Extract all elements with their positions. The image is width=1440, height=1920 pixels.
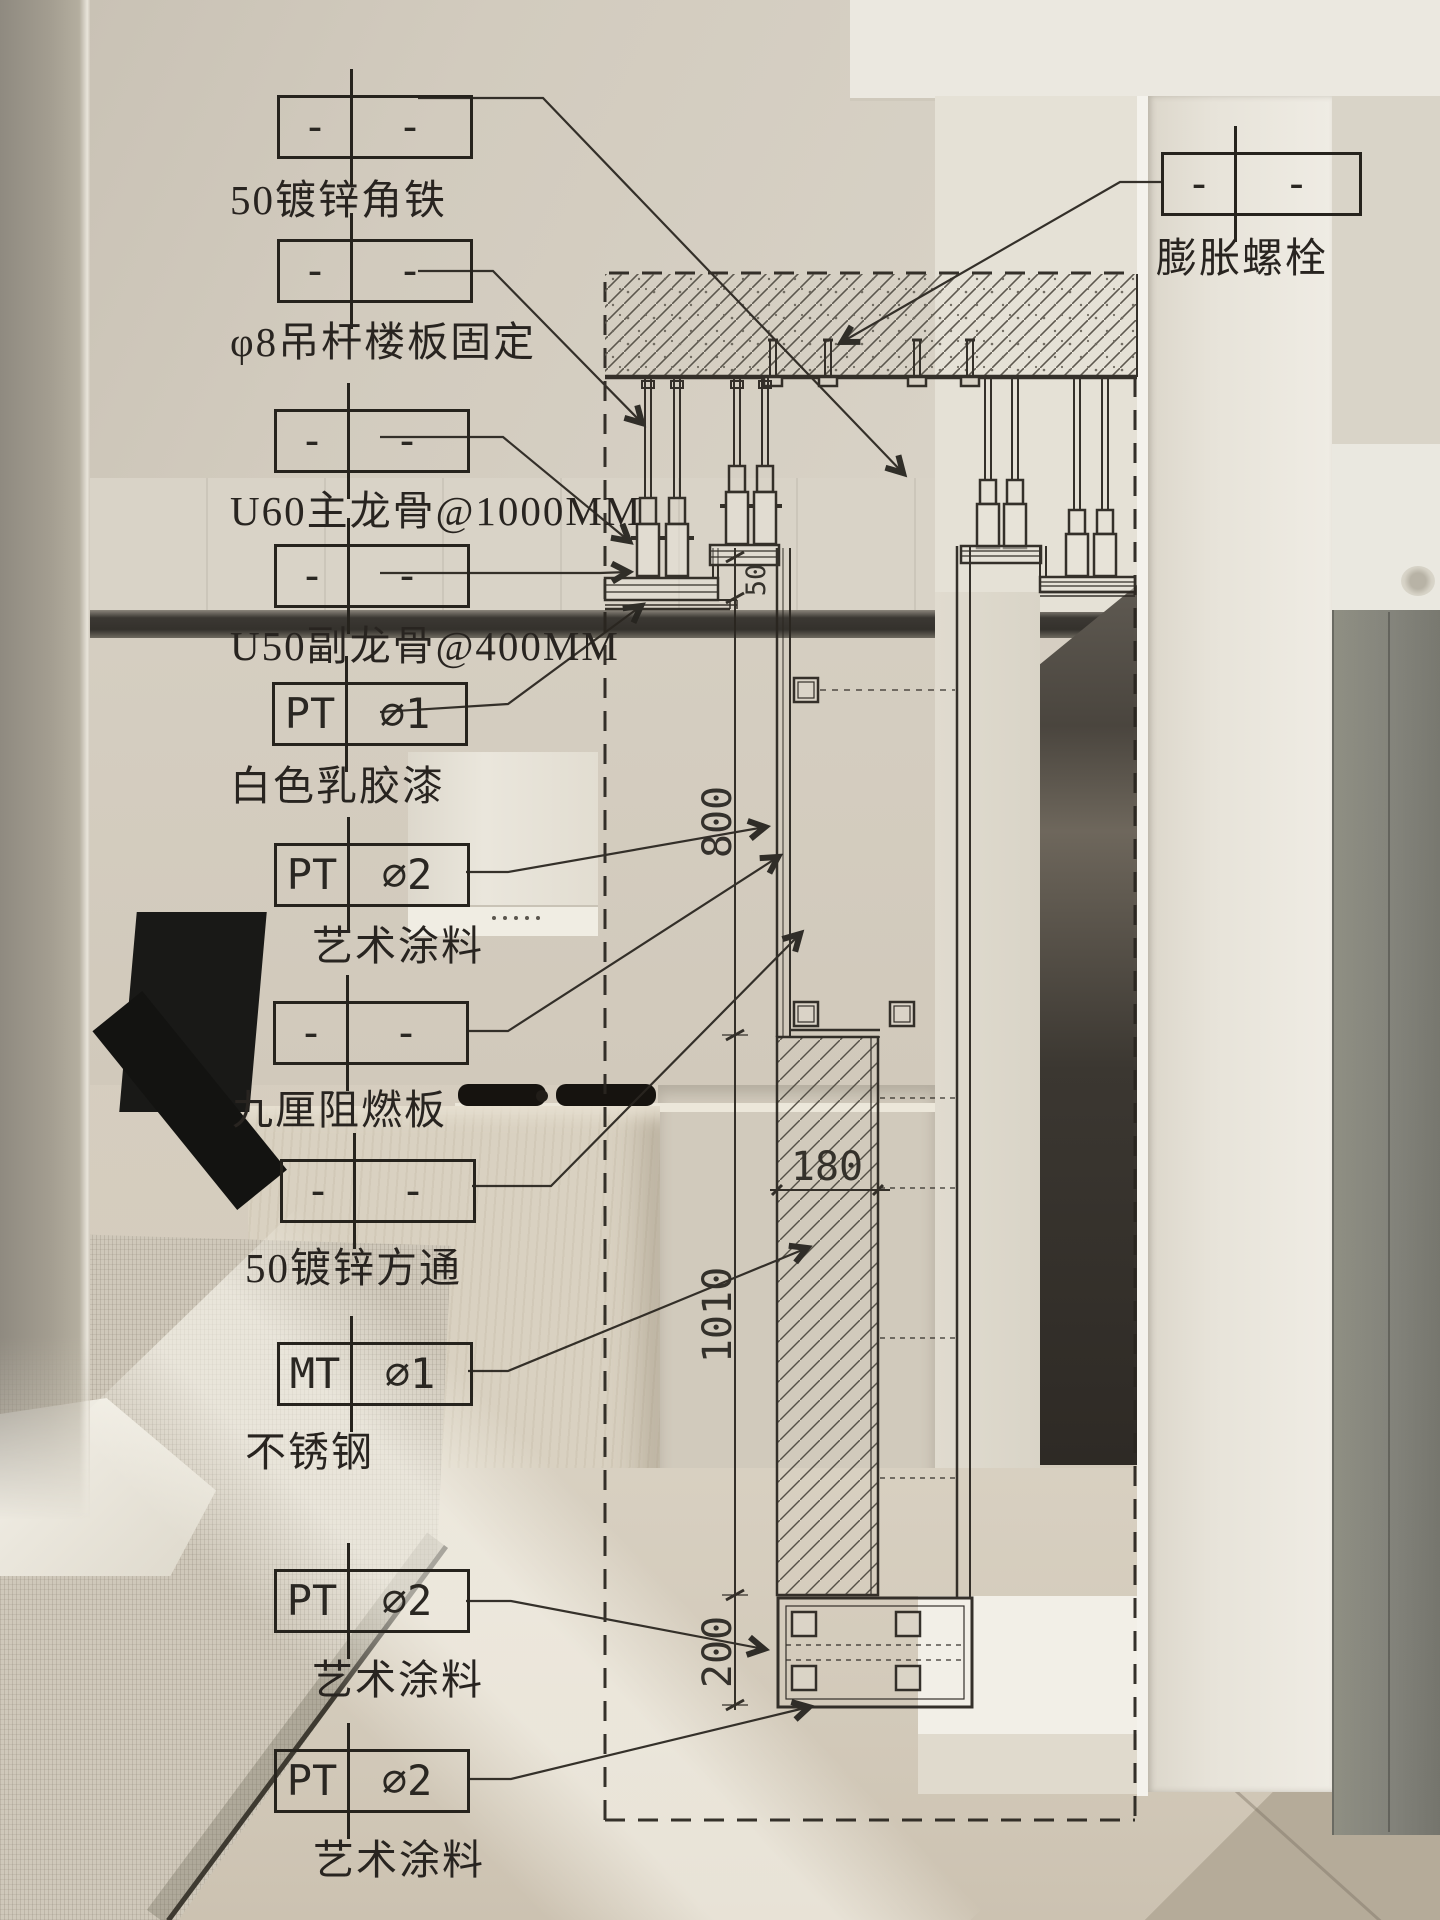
label-box-expansion-bolt: -- [1161,152,1362,216]
label-box-pt02-lower1: PT∅2 [274,1569,470,1633]
tag-cell: - [350,242,470,300]
caption-square-tube: 50镀锌方通 [245,1234,462,1294]
label-box-square-tube: -- [280,1159,476,1223]
tag-cell: - [280,242,350,300]
annotations: -- 50镀锌角铁 -- φ8吊杆楼板固定 -- U60主龙骨@1000MM -… [0,0,1440,1920]
label-box-pt02-lower2: PT∅2 [274,1749,470,1813]
tag-cell: - [347,412,467,470]
tag-cell: - [1234,155,1359,213]
tag-cell: ∅1 [350,1345,470,1403]
label-box-mt01: MT∅1 [277,1342,473,1406]
label-box-fire-board: -- [273,1001,469,1065]
label-box-main-keel: -- [274,409,470,473]
tag-cell: - [350,98,470,156]
tag-cell: - [277,547,347,605]
label-box-angle-iron: -- [277,95,473,159]
tag-cell: PT [277,846,347,904]
tag-cell: - [276,1004,346,1062]
tag-cell: ∅1 [345,685,465,743]
tag-cell: - [277,412,347,470]
tag-cell: MT [280,1345,350,1403]
caption-sub-keel: U50副龙骨@400MM [230,612,620,672]
tag-cell: - [346,1004,466,1062]
caption-white-latex-paint: 白色乳胶漆 [230,752,445,812]
tag-cell: - [347,547,467,605]
caption-main-keel: U60主龙骨@1000MM [230,477,642,537]
caption-art-paint-upper: 艺术涂料 [312,912,484,972]
ceiling-wall-detail-overlay: 50 800 1010 200 180 -- 50镀锌角铁 -- φ8吊杆楼板固… [0,0,1440,1920]
tag-cell: PT [277,1752,347,1810]
tag-cell: - [280,98,350,156]
label-box-sub-keel: -- [274,544,470,608]
caption-expansion-bolt: 膨胀螺栓 [1156,224,1328,284]
caption-art-paint-lower2: 艺术涂料 [313,1826,485,1886]
tag-cell: PT [275,685,345,743]
tag-cell: ∅2 [347,1572,467,1630]
label-box-pt01: PT∅1 [272,682,468,746]
tag-cell: - [283,1162,353,1220]
caption-art-paint-lower1: 艺术涂料 [312,1646,484,1706]
tag-cell: ∅2 [347,1752,467,1810]
tag-cell: - [1164,155,1234,213]
caption-angle-iron: 50镀锌角铁 [230,166,447,226]
caption-hanger-rod: φ8吊杆楼板固定 [230,308,536,368]
label-box-hanger-rod: -- [277,239,473,303]
tag-cell: - [353,1162,473,1220]
tag-cell: PT [277,1572,347,1630]
tag-cell: ∅2 [347,846,467,904]
caption-stainless-steel: 不锈钢 [245,1418,374,1478]
label-box-pt02-upper: PT∅2 [274,843,470,907]
caption-fire-board: 九厘阻燃板 [232,1076,447,1136]
